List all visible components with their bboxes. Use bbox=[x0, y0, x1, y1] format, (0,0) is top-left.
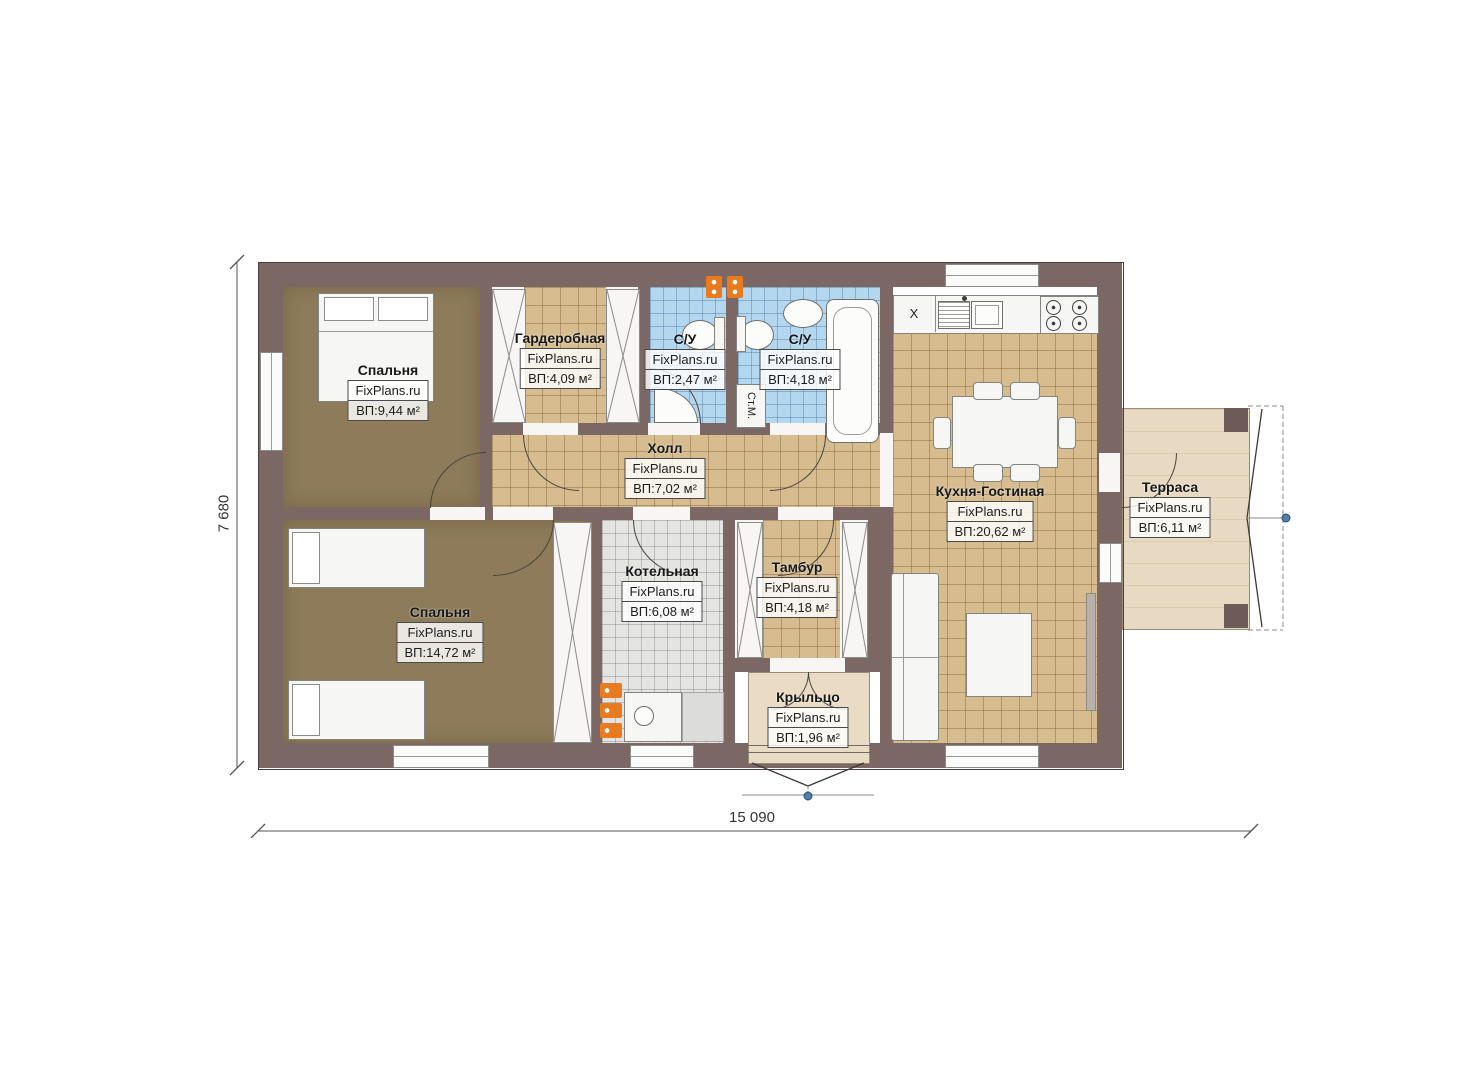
brand-watermark: FixPlans.ru bbox=[645, 350, 724, 369]
window-left-bedroom-1 bbox=[260, 352, 283, 451]
label-porch: Крыльцо FixPlans.ru ВП:1,96 м² bbox=[767, 689, 848, 748]
room-area: ВП:2,47 м² bbox=[645, 369, 724, 389]
room-area: ВП:9,44 м² bbox=[348, 400, 427, 420]
chair bbox=[973, 382, 1003, 400]
room-info-box: FixPlans.ru ВП:6,11 м² bbox=[1129, 497, 1210, 538]
room-area: ВП:14,72 м² bbox=[397, 642, 482, 662]
window-bottom-kitchen bbox=[945, 745, 1039, 768]
label-bathroom-1: С/У FixPlans.ru ВП:2,47 м² bbox=[644, 331, 725, 390]
vent-icon bbox=[706, 276, 722, 298]
door-opening-bedroom-1 bbox=[430, 507, 485, 520]
gas-marker-label: X bbox=[910, 306, 919, 321]
washing-machine-label: Ст.М. bbox=[745, 392, 757, 419]
room-name: Кухня-Гостиная bbox=[936, 483, 1045, 499]
toilet-tank bbox=[736, 316, 746, 352]
pillow bbox=[378, 297, 428, 321]
dining-table bbox=[952, 396, 1058, 468]
tv bbox=[1086, 593, 1096, 711]
sofa bbox=[891, 573, 939, 741]
room-info-box: FixPlans.ru ВП:4,18 м² bbox=[756, 577, 837, 618]
wall-boiler-right bbox=[723, 520, 735, 743]
room-area: ВП:20,62 м² bbox=[947, 521, 1032, 541]
dimension-tick bbox=[251, 824, 265, 838]
washing-machine: Ст.М. bbox=[736, 384, 766, 428]
wall-hall-seg1 bbox=[283, 507, 430, 520]
stove-burner-icon bbox=[1046, 316, 1061, 331]
porch-step-2 bbox=[746, 752, 870, 753]
wall-toprooms-seg2 bbox=[578, 423, 648, 435]
boiler-dial-icon bbox=[634, 706, 654, 726]
door-opening-terrace bbox=[1099, 453, 1120, 492]
brand-watermark: FixPlans.ru bbox=[625, 459, 704, 478]
window-top-kitchen bbox=[945, 264, 1039, 287]
pipe-marker-icon bbox=[600, 703, 622, 718]
room-name: Тамбур bbox=[772, 559, 823, 575]
window-bottom-boiler bbox=[630, 745, 694, 768]
room-info-box: FixPlans.ru ВП:14,72 м² bbox=[396, 622, 483, 663]
kitchen-sink bbox=[971, 301, 1003, 329]
chair bbox=[1058, 417, 1076, 449]
brand-watermark: FixPlans.ru bbox=[397, 623, 482, 642]
brand-watermark: FixPlans.ru bbox=[1130, 498, 1209, 517]
brand-watermark: FixPlans.ru bbox=[520, 349, 599, 368]
opening-hall-kitchen bbox=[880, 433, 893, 507]
dimension-tick bbox=[1244, 824, 1258, 838]
wall-vestibule-right bbox=[868, 520, 880, 672]
door-opening-bedroom-2 bbox=[493, 507, 553, 520]
room-name: Гардеробная bbox=[515, 330, 606, 346]
room-area: ВП:6,08 м² bbox=[622, 601, 701, 621]
stove-burner-icon bbox=[1072, 300, 1087, 315]
boiler-shelf bbox=[682, 692, 724, 742]
room-name: Спальня bbox=[410, 604, 470, 620]
label-boiler: Котельная FixPlans.ru ВП:6,08 м² bbox=[621, 563, 702, 622]
closet-wardrobe-right bbox=[606, 289, 640, 423]
dimension-width: 15 090 bbox=[690, 809, 814, 826]
closet-bedroom-2 bbox=[553, 522, 592, 743]
pillow bbox=[324, 297, 374, 321]
pillow bbox=[292, 532, 320, 584]
chair bbox=[933, 417, 951, 449]
brand-watermark: FixPlans.ru bbox=[622, 582, 701, 601]
wall-bath2-kitchen bbox=[880, 287, 893, 433]
room-info-box: FixPlans.ru ВП:4,09 м² bbox=[519, 348, 600, 389]
label-bedroom-2: Спальня FixPlans.ru ВП:14,72 м² bbox=[396, 604, 483, 663]
room-area: ВП:1,96 м² bbox=[768, 727, 847, 747]
chair bbox=[1010, 382, 1040, 400]
wall-hall-seg3 bbox=[553, 507, 633, 520]
room-info-box: FixPlans.ru ВП:4,18 м² bbox=[759, 349, 840, 390]
floor-plan: X Ст.М. bbox=[0, 0, 1474, 1080]
gas-marker: X bbox=[893, 295, 936, 332]
brand-watermark: FixPlans.ru bbox=[348, 381, 427, 400]
room-name: Спальня bbox=[358, 362, 418, 378]
room-info-box: FixPlans.ru ВП:7,02 м² bbox=[624, 458, 705, 499]
terrace-post bbox=[1224, 408, 1248, 432]
room-name: С/У bbox=[789, 331, 812, 347]
dimension-height: 7 680 bbox=[216, 474, 233, 554]
dimension-tick bbox=[230, 761, 244, 775]
door-opening-boiler bbox=[633, 507, 690, 520]
faucet-icon bbox=[962, 296, 967, 301]
room-name: Крыльцо bbox=[776, 689, 840, 705]
porch-marker-dot bbox=[804, 792, 812, 800]
label-bathroom-2: С/У FixPlans.ru ВП:4,18 м² bbox=[759, 331, 840, 390]
washbasin bbox=[783, 299, 823, 328]
wall-vestibule-bottom-seg2 bbox=[845, 658, 880, 672]
brand-watermark: FixPlans.ru bbox=[768, 708, 847, 727]
pipe-marker-icon bbox=[600, 723, 622, 738]
room-info-box: FixPlans.ru ВП:9,44 м² bbox=[347, 380, 428, 421]
room-area: ВП:7,02 м² bbox=[625, 478, 704, 498]
room-name: Котельная bbox=[625, 563, 698, 579]
dimension-tick bbox=[230, 255, 244, 269]
wall-right bbox=[1097, 262, 1122, 768]
label-bedroom-1: Спальня FixPlans.ru ВП:9,44 м² bbox=[347, 362, 428, 421]
label-hall: Холл FixPlans.ru ВП:7,02 м² bbox=[624, 440, 705, 499]
label-terrace: Терраса FixPlans.ru ВП:6,11 м² bbox=[1129, 479, 1210, 538]
label-wardrobe: Гардеробная FixPlans.ru ВП:4,09 м² bbox=[515, 330, 606, 389]
pillow bbox=[292, 684, 320, 736]
label-kitchen-living: Кухня-Гостиная FixPlans.ru ВП:20,62 м² bbox=[936, 483, 1045, 542]
wall-left bbox=[258, 262, 283, 768]
coffee-table bbox=[966, 613, 1032, 697]
room-info-box: FixPlans.ru ВП:1,96 м² bbox=[767, 707, 848, 748]
door-opening-wardrobe bbox=[523, 423, 578, 435]
room-info-box: FixPlans.ru ВП:2,47 м² bbox=[644, 349, 725, 390]
label-vestibule: Тамбур FixPlans.ru ВП:4,18 м² bbox=[756, 559, 837, 618]
closet-vestibule-right bbox=[842, 522, 868, 658]
room-area: ВП:4,18 м² bbox=[757, 597, 836, 617]
chair bbox=[973, 464, 1003, 482]
terrace-marker-dot bbox=[1282, 514, 1290, 522]
stove-burner-icon bbox=[1046, 300, 1061, 315]
brand-watermark: FixPlans.ru bbox=[947, 502, 1032, 521]
terrace-post bbox=[1224, 604, 1248, 628]
window-right-terrace bbox=[1099, 543, 1122, 583]
room-area: ВП:4,09 м² bbox=[520, 368, 599, 388]
door-opening-bathroom-2 bbox=[770, 423, 825, 435]
room-info-box: FixPlans.ru ВП:20,62 м² bbox=[946, 501, 1033, 542]
room-area: ВП:4,18 м² bbox=[760, 369, 839, 389]
wall-toprooms-seg1 bbox=[492, 423, 523, 435]
room-info-box: FixPlans.ru ВП:6,08 м² bbox=[621, 581, 702, 622]
vent-icon bbox=[727, 276, 743, 298]
pipe-marker-icon bbox=[600, 683, 622, 698]
wall-hall-seg5 bbox=[833, 507, 880, 520]
room-name: Терраса bbox=[1142, 479, 1198, 495]
brand-watermark: FixPlans.ru bbox=[760, 350, 839, 369]
door-opening-bathroom-1 bbox=[648, 423, 700, 435]
room-name: С/У bbox=[674, 331, 697, 347]
door-opening-front bbox=[770, 658, 845, 672]
brand-watermark: FixPlans.ru bbox=[757, 578, 836, 597]
chair bbox=[1010, 464, 1040, 482]
stove-burner-icon bbox=[1072, 316, 1087, 331]
wall-hall-seg2 bbox=[485, 507, 493, 520]
window-bottom-bedroom-2 bbox=[393, 745, 489, 768]
bed-blanket-line bbox=[319, 331, 433, 332]
door-opening-vestibule bbox=[778, 507, 833, 520]
room-area: ВП:6,11 м² bbox=[1130, 517, 1209, 537]
sink-drainer bbox=[938, 301, 970, 329]
room-name: Холл bbox=[647, 440, 682, 456]
wall-vestibule-bottom-seg1 bbox=[735, 658, 770, 672]
wall-hall-seg4 bbox=[690, 507, 778, 520]
